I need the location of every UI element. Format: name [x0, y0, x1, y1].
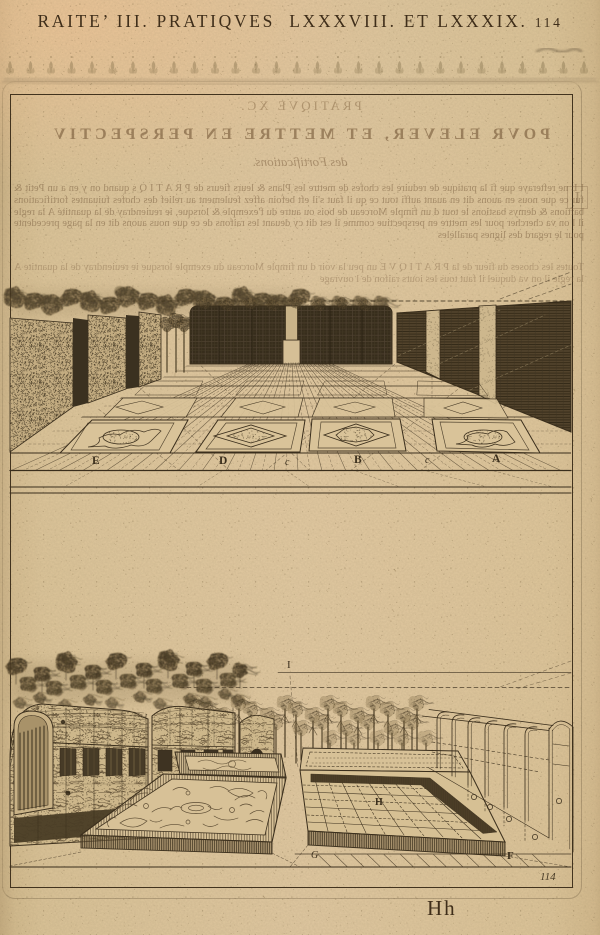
svg-text:114: 114 [540, 871, 556, 883]
svg-text:G: G [311, 850, 318, 861]
svg-text:H: H [375, 797, 383, 808]
svg-text:F: F [507, 850, 514, 862]
svg-text:I: I [287, 659, 291, 671]
svg-text:E: E [92, 455, 100, 467]
svg-text:B: B [354, 454, 362, 466]
svg-text:c: c [425, 455, 430, 466]
svg-text:D: D [219, 455, 227, 467]
svg-text:c: c [285, 457, 290, 468]
svg-text:A: A [492, 453, 501, 465]
